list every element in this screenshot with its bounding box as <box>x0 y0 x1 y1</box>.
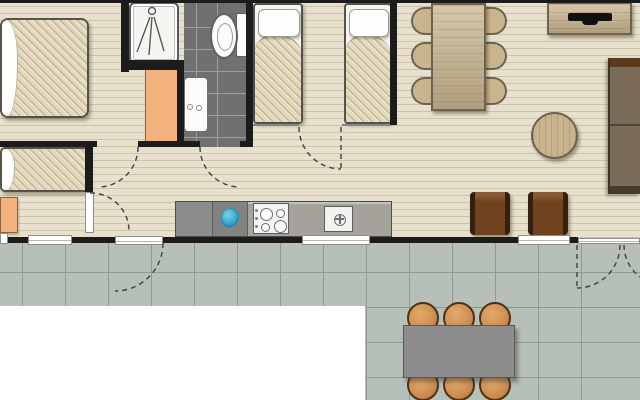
floor-plan <box>0 0 640 400</box>
door-arc-french-right <box>624 245 640 277</box>
door-arc-deck <box>115 243 163 291</box>
door-arc-bathroom <box>200 147 240 187</box>
door-arc-bedroom1 <box>98 147 138 187</box>
door-arc-bedroom2 <box>299 127 341 169</box>
shower-icon <box>137 8 164 56</box>
door-swing-overlay <box>0 0 640 400</box>
door-arc-french-left <box>577 245 620 288</box>
door-arc-bedroom3 <box>90 193 129 231</box>
